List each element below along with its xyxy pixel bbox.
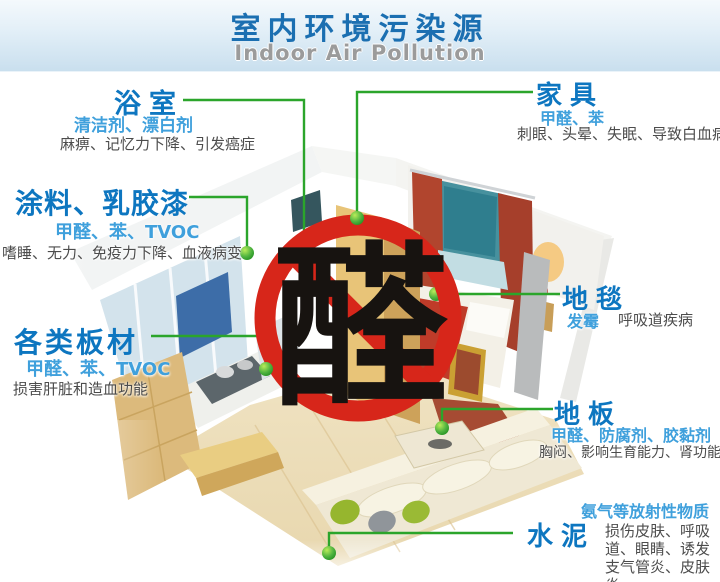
callout-effects: 呼吸道疾病 — [618, 309, 693, 330]
callout-effects: 刺眼、头晕、失眠、导致白血病 — [517, 123, 720, 144]
callout-effects: 嗜睡、无力、免疫力下降、血液病变 — [2, 242, 242, 263]
callout-effects: 损伤皮肤、呼吸道、眼睛、诱发支气管炎、皮肤炎 — [605, 522, 720, 582]
callout-effects: 麻痹、记忆力下降、引发癌症 — [60, 133, 255, 154]
callout-title: 涂料、乳胶漆 — [15, 182, 189, 222]
pot — [216, 366, 234, 378]
window-glass — [444, 186, 497, 257]
callout-title: 水泥 — [527, 516, 595, 553]
kettle — [237, 360, 253, 370]
callout-effects: 损害肝脏和造血功能 — [13, 378, 148, 399]
callout-effects: 胸闷、影响生育能力、肾功能 — [539, 442, 720, 462]
back-wall — [312, 146, 396, 186]
connector-dot-floor — [435, 421, 449, 435]
connector-dot-furniture — [350, 211, 364, 225]
connector-dot-cement — [322, 546, 336, 560]
prohibition-sign: 醛 — [265, 225, 451, 432]
callout-pollutants: 发霉 — [567, 308, 599, 332]
connector-dot-boards — [259, 362, 273, 376]
infographic-canvas: 室内环境污染源 Indoor Air Pollution — [0, 0, 720, 582]
table-tray — [428, 439, 452, 449]
callout-pollutants: 甲醛、苯、TVOC — [55, 218, 199, 244]
callout-pollutants: 氨气等放射性物质 — [581, 498, 709, 522]
wall-painting-art — [454, 349, 481, 395]
connector-dot-paint — [240, 246, 254, 260]
aldehyde-character: 醛 — [272, 227, 448, 432]
